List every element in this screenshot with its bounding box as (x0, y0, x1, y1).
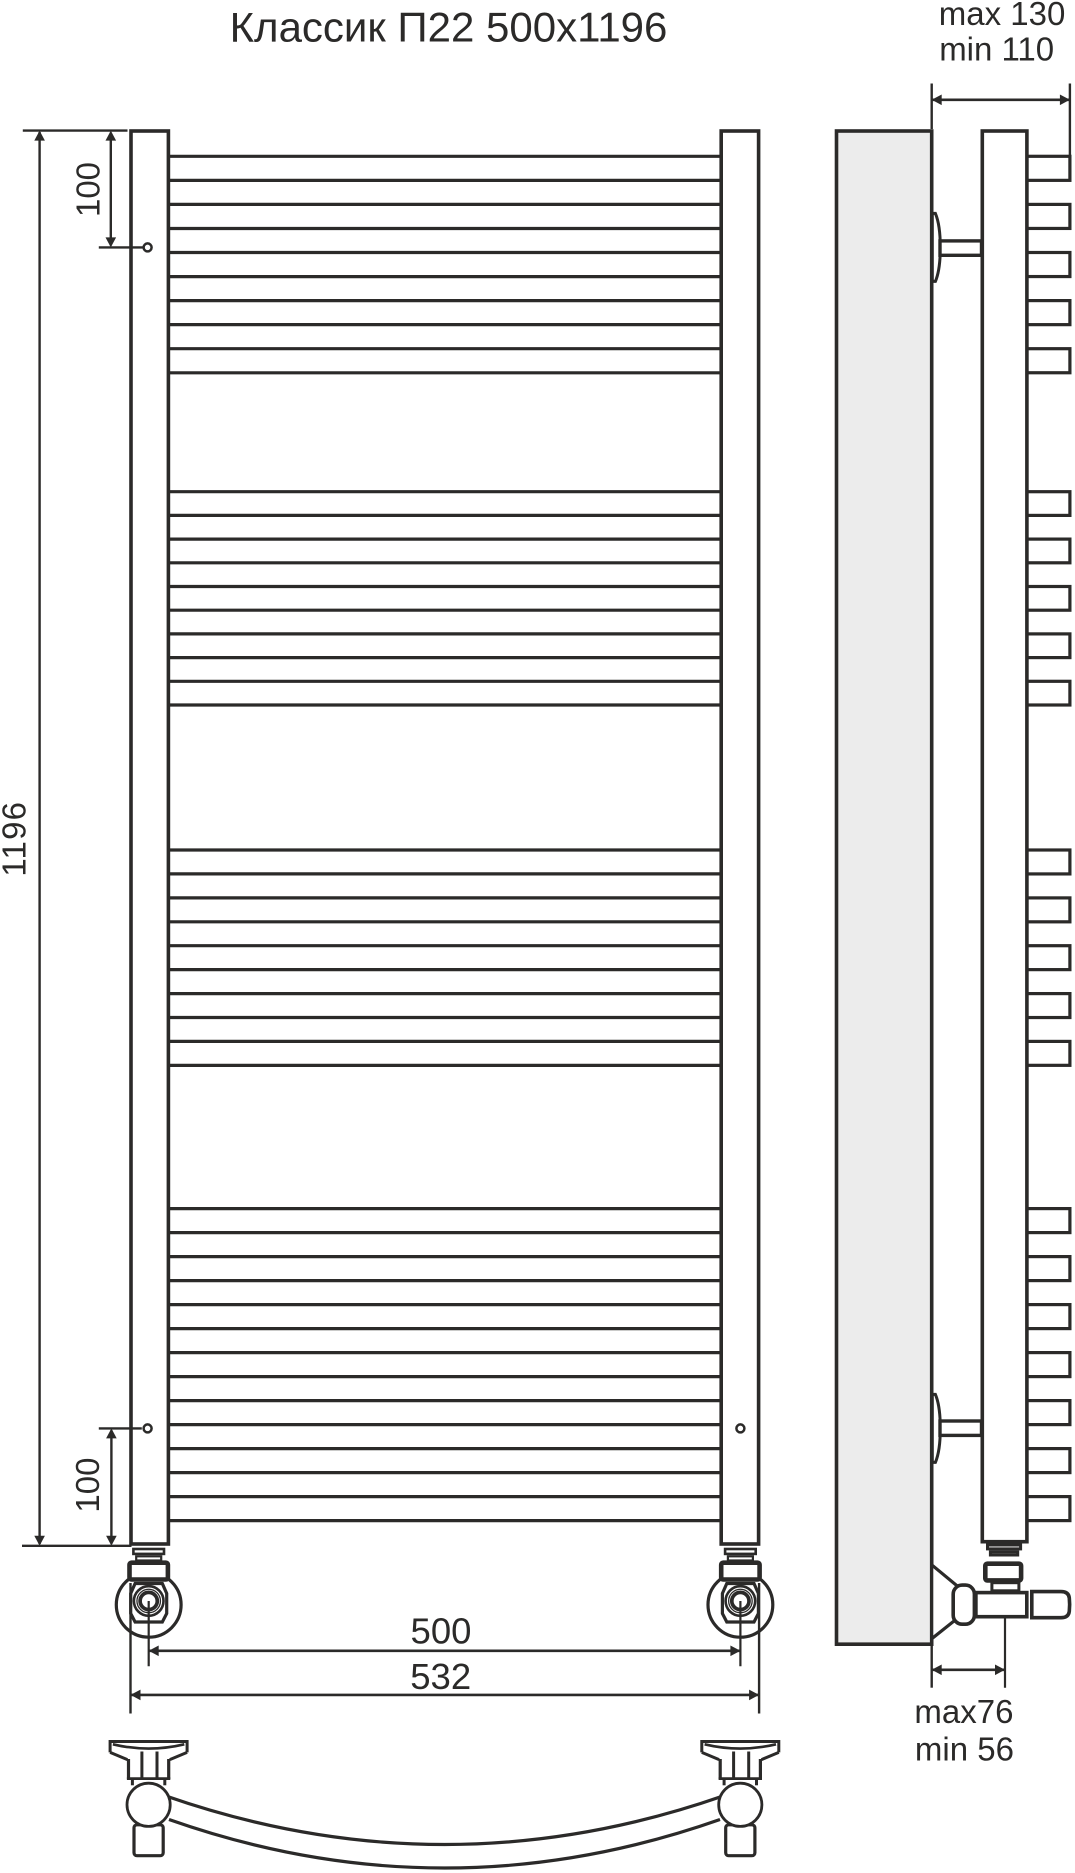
svg-text:100: 100 (69, 1458, 106, 1513)
svg-text:Классик П22 500х1196: Классик П22 500х1196 (230, 4, 668, 51)
svg-text:100: 100 (69, 162, 106, 217)
svg-text:max 130: max 130 (939, 0, 1066, 32)
svg-text:1196: 1196 (0, 801, 32, 877)
svg-text:532: 532 (410, 1656, 471, 1697)
svg-text:min 110: min 110 (939, 31, 1054, 68)
svg-text:min 56: min 56 (915, 1730, 1014, 1767)
svg-text:max76: max76 (914, 1693, 1013, 1730)
svg-text:500: 500 (411, 1611, 472, 1652)
